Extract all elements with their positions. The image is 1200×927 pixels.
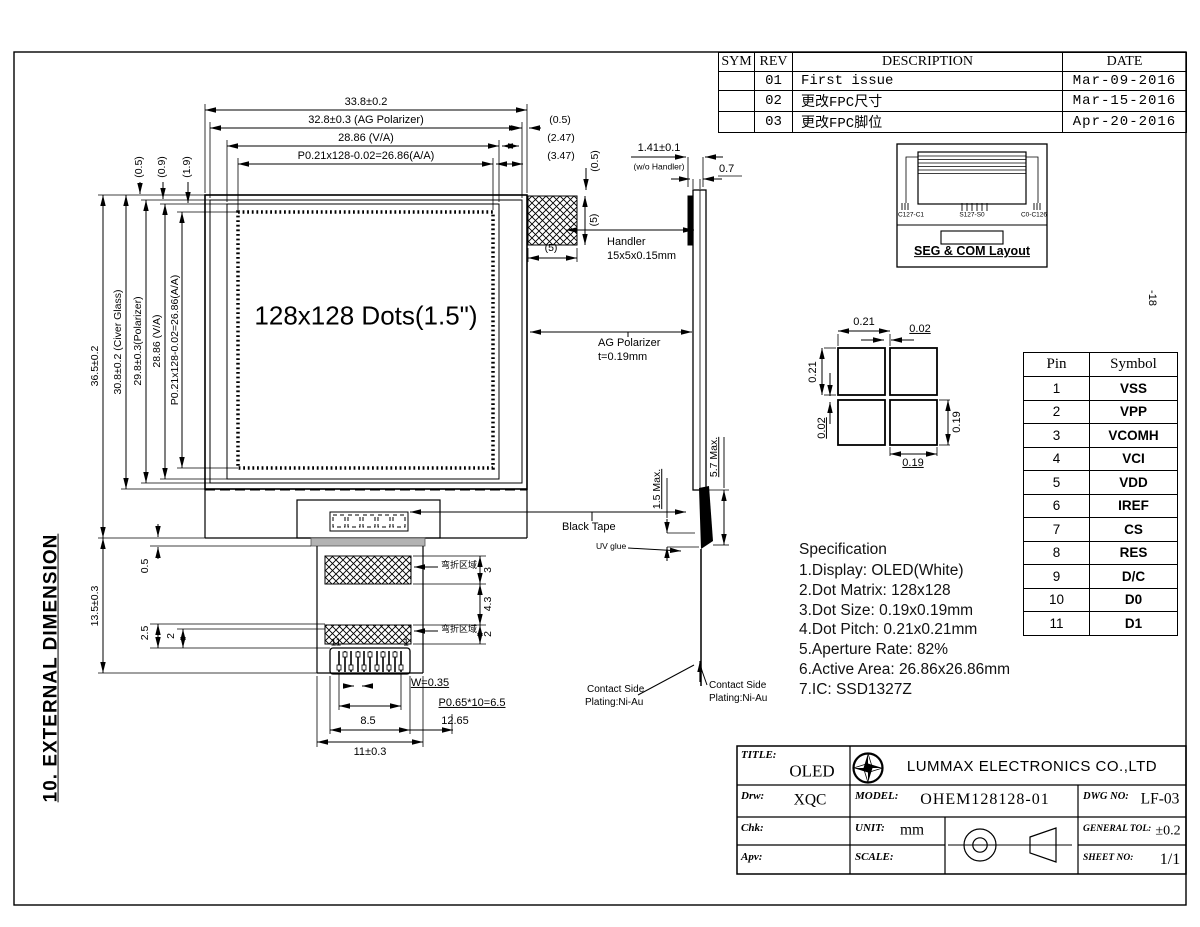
pin-header-pin: Pin bbox=[1024, 353, 1090, 377]
rev-cell: 更改FPC尺寸 bbox=[793, 91, 1063, 112]
dim-glass-height: 30.8±0.2 (Civer Glass) bbox=[113, 290, 125, 395]
segcom-right-label: C0-C126 bbox=[1021, 211, 1047, 218]
dim-thickness-note: (w/o Handler) bbox=[633, 162, 684, 171]
rev-header-sym: SYM bbox=[719, 53, 755, 72]
rev-header-date: DATE bbox=[1063, 53, 1187, 72]
symbol-cell: VCOMH bbox=[1090, 424, 1178, 448]
revision-row: 01 First issue Mar-09-2016 bbox=[719, 72, 1187, 91]
pin-cell: 11 bbox=[1024, 612, 1090, 636]
symbol-cell: VSS bbox=[1090, 377, 1178, 401]
pin-cell: 6 bbox=[1024, 494, 1090, 518]
drawing-sheet: 10. EXTERNAL DIMENSION -18 128x128 Dots(… bbox=[0, 0, 1200, 927]
symbol-cell: VDD bbox=[1090, 471, 1178, 495]
sheet-no-label: SHEET NO: bbox=[1083, 853, 1133, 863]
pin-cell: 9 bbox=[1024, 565, 1090, 589]
dim-dot-width: 0.19 bbox=[902, 457, 923, 469]
rev-cell: 02 bbox=[755, 91, 793, 112]
pin-row: 6IREF bbox=[1024, 494, 1178, 518]
pin-number-11: 11 bbox=[331, 638, 341, 649]
pin-cell: 5 bbox=[1024, 471, 1090, 495]
dim-topleft-09: (0.9) bbox=[157, 156, 169, 178]
title-value: OLED bbox=[789, 763, 834, 782]
dim-15-max: 1.5 Max. bbox=[652, 469, 664, 509]
spec-item-display: 1.Display: OLED(White) bbox=[799, 562, 964, 580]
general-tol-value: ±0.2 bbox=[1155, 823, 1180, 838]
pin-row: 3VCOMH bbox=[1024, 424, 1178, 448]
ag-thickness-label: t=0.19mm bbox=[598, 351, 647, 363]
symbol-cell: IREF bbox=[1090, 494, 1178, 518]
rev-header-description: DESCRIPTION bbox=[793, 53, 1063, 72]
pin-header-row: Pin Symbol bbox=[1024, 353, 1178, 377]
dim-right-05-vert: (0.5) bbox=[590, 150, 602, 172]
dim-57-max: 5.7 Max. bbox=[709, 437, 721, 477]
title-label: TITLE: bbox=[741, 749, 776, 761]
dim-fpc-3: 3 bbox=[483, 567, 495, 573]
dim-dot-height: 0.19 bbox=[951, 411, 963, 432]
dim-va-height: 28.86 (V/A) bbox=[152, 314, 164, 367]
black-tape-label: Black Tape bbox=[562, 521, 616, 533]
rev-cell: 01 bbox=[755, 72, 793, 91]
symbol-cell: VCI bbox=[1090, 447, 1178, 471]
dim-handler-height: (5) bbox=[589, 214, 601, 227]
dim-total-width: 33.8±0.2 bbox=[345, 96, 388, 108]
dim-polarizer-width: 32.8±0.3 (AG Polarizer) bbox=[308, 114, 423, 126]
dim-dot-pitch-h: 0.21 bbox=[853, 316, 874, 328]
segcom-center-label: S127-S0 bbox=[959, 211, 984, 218]
pin-row: 5VDD bbox=[1024, 471, 1178, 495]
pin-cell: 8 bbox=[1024, 541, 1090, 565]
pin-cell: 4 bbox=[1024, 447, 1090, 471]
general-tol-label: GENERAL TOL: bbox=[1083, 824, 1151, 834]
dim-fpc-135: 13.5±0.3 bbox=[90, 586, 102, 627]
rev-cell: First issue bbox=[793, 72, 1063, 91]
dwg-no-value: LF-03 bbox=[1141, 790, 1180, 807]
plating-left: Plating:Ni-Au bbox=[585, 697, 643, 708]
bend-area-label-1: 弯折区域 bbox=[441, 561, 477, 571]
symbol-cell: D1 bbox=[1090, 612, 1178, 636]
rev-cell: 更改FPC脚位 bbox=[793, 112, 1063, 133]
drawing-linework bbox=[0, 0, 1200, 927]
contact-side-left: Contact Side bbox=[587, 684, 644, 695]
bend-area-label-2: 弯折区域 bbox=[441, 625, 477, 635]
dim-polarizer-height: 29.8±0.3(Polarizer) bbox=[133, 296, 145, 385]
revision-table: SYM REV DESCRIPTION DATE 01 First issue … bbox=[718, 52, 1187, 133]
dim-dot-gap-h: 0.02 bbox=[909, 323, 930, 335]
dim-85: 8.5 bbox=[360, 715, 375, 727]
unit-label: UNIT: bbox=[855, 822, 885, 834]
pin-row: 2VPP bbox=[1024, 400, 1178, 424]
dim-07: 0.7 bbox=[719, 163, 734, 175]
symbol-cell: RES bbox=[1090, 541, 1178, 565]
margin-note: -18 bbox=[1146, 290, 1158, 306]
spec-item-ic: 7.IC: SSD1327Z bbox=[799, 681, 912, 699]
model-value: OHEM128128-01 bbox=[920, 791, 1049, 809]
dim-dot-pitch-v: 0.21 bbox=[807, 361, 819, 382]
active-area-label: 128x128 Dots(1.5") bbox=[254, 302, 477, 331]
dim-right-247: (2.47) bbox=[547, 133, 574, 145]
pin-row: 1VSS bbox=[1024, 377, 1178, 401]
segcom-caption: SEG & COM Layout bbox=[914, 245, 1030, 259]
pin-table: Pin Symbol 1VSS 2VPP 3VCOMH 4VCI 5VDD 6I… bbox=[1023, 352, 1178, 636]
sheet-no-value: 1/1 bbox=[1160, 851, 1180, 869]
section-title: 10. EXTERNAL DIMENSION bbox=[42, 534, 63, 803]
handler-label: Handler bbox=[607, 236, 646, 248]
dwg-no-label: DWG NO: bbox=[1083, 791, 1129, 803]
symbol-cell: VPP bbox=[1090, 400, 1178, 424]
spec-item-dot-size: 3.Dot Size: 0.19x0.19mm bbox=[799, 602, 973, 620]
dim-right-347: (3.47) bbox=[547, 151, 574, 163]
dim-handler-width: (5) bbox=[545, 243, 558, 255]
chk-label: Chk: bbox=[741, 822, 764, 834]
dim-11: 11±0.3 bbox=[354, 746, 387, 758]
dim-right-05: (0.5) bbox=[549, 115, 571, 127]
unit-value: mm bbox=[900, 821, 924, 838]
pin-row: 9D/C bbox=[1024, 565, 1178, 589]
dim-fpc-2-left: 2 bbox=[166, 633, 178, 639]
revision-header-row: SYM REV DESCRIPTION DATE bbox=[719, 53, 1187, 72]
rev-header-rev: REV bbox=[755, 53, 793, 72]
pin-row: 4VCI bbox=[1024, 447, 1178, 471]
pin-cell: 1 bbox=[1024, 377, 1090, 401]
handler-size-label: 15x5x0.15mm bbox=[607, 250, 676, 262]
dim-fpc-43: 4.3 bbox=[483, 597, 495, 612]
symbol-cell: CS bbox=[1090, 518, 1178, 542]
scale-label: SCALE: bbox=[855, 851, 894, 863]
segcom-left-label: C127-C1 bbox=[898, 211, 924, 218]
revision-row: 03 更改FPC脚位 Apr-20-2016 bbox=[719, 112, 1187, 133]
dim-topleft-19: (1.9) bbox=[182, 156, 194, 178]
pin-cell: 3 bbox=[1024, 424, 1090, 448]
apv-label: Apv: bbox=[741, 851, 762, 863]
rev-cell bbox=[719, 112, 755, 133]
pin-row: 11D1 bbox=[1024, 612, 1178, 636]
spec-item-dot-pitch: 4.Dot Pitch: 0.21x0.21mm bbox=[799, 621, 977, 639]
dim-aa-width: P0.21x128-0.02=26.86(A/A) bbox=[298, 150, 435, 162]
spec-item-matrix: 2.Dot Matrix: 128x128 bbox=[799, 582, 951, 600]
rev-cell bbox=[719, 72, 755, 91]
pin-header-symbol: Symbol bbox=[1090, 353, 1178, 377]
pin-cell: 10 bbox=[1024, 588, 1090, 612]
dim-fpc-25: 2.5 bbox=[140, 626, 152, 641]
rev-cell: Mar-15-2016 bbox=[1063, 91, 1187, 112]
pin-cell: 2 bbox=[1024, 400, 1090, 424]
pin-number-1: 1 bbox=[403, 638, 409, 649]
spec-item-active-area: 6.Active Area: 26.86x26.86mm bbox=[799, 661, 1010, 679]
rev-cell bbox=[719, 91, 755, 112]
dim-pin-pitch: P0.65*10=6.5 bbox=[439, 697, 506, 709]
company-name: LUMMAX ELECTRONICS CO.,LTD bbox=[907, 759, 1157, 776]
dim-dot-gap-v: 0.02 bbox=[816, 417, 828, 438]
drw-label: Drw: bbox=[741, 790, 764, 802]
rev-cell: Apr-20-2016 bbox=[1063, 112, 1187, 133]
pin-cell: 7 bbox=[1024, 518, 1090, 542]
rev-cell: Mar-09-2016 bbox=[1063, 72, 1187, 91]
pin-row: 10D0 bbox=[1024, 588, 1178, 612]
dim-thickness: 1.41±0.1 bbox=[638, 142, 681, 154]
rev-cell: 03 bbox=[755, 112, 793, 133]
dim-total-height: 36.5±0.2 bbox=[90, 346, 102, 387]
revision-row: 02 更改FPC尺寸 Mar-15-2016 bbox=[719, 91, 1187, 112]
plating-right: Plating:Ni-Au bbox=[709, 693, 767, 704]
spec-title: Specification bbox=[799, 541, 887, 559]
dim-fpc-05: 0.5 bbox=[140, 559, 152, 574]
drw-value: XQC bbox=[794, 791, 827, 808]
model-label: MODEL: bbox=[855, 790, 898, 802]
symbol-cell: D0 bbox=[1090, 588, 1178, 612]
pin-row: 8RES bbox=[1024, 541, 1178, 565]
contact-side-right: Contact Side bbox=[709, 680, 766, 691]
dim-topleft-05: (0.5) bbox=[134, 156, 146, 178]
dim-aa-height: P0.21x128-0.02=26.86(A/A) bbox=[170, 275, 182, 405]
uv-glue-label: UV glue bbox=[596, 542, 626, 551]
symbol-cell: D/C bbox=[1090, 565, 1178, 589]
ag-polarizer-label: AG Polarizer bbox=[598, 337, 660, 349]
pin-row: 7CS bbox=[1024, 518, 1178, 542]
dim-1265: 12.65 bbox=[441, 715, 469, 727]
spec-item-aperture: 5.Aperture Rate: 82% bbox=[799, 641, 948, 659]
dim-pin-width: W=0.35 bbox=[411, 677, 449, 689]
dim-va-width: 28.86 (V/A) bbox=[338, 132, 394, 144]
dim-fpc-2-right: 2 bbox=[483, 631, 495, 637]
